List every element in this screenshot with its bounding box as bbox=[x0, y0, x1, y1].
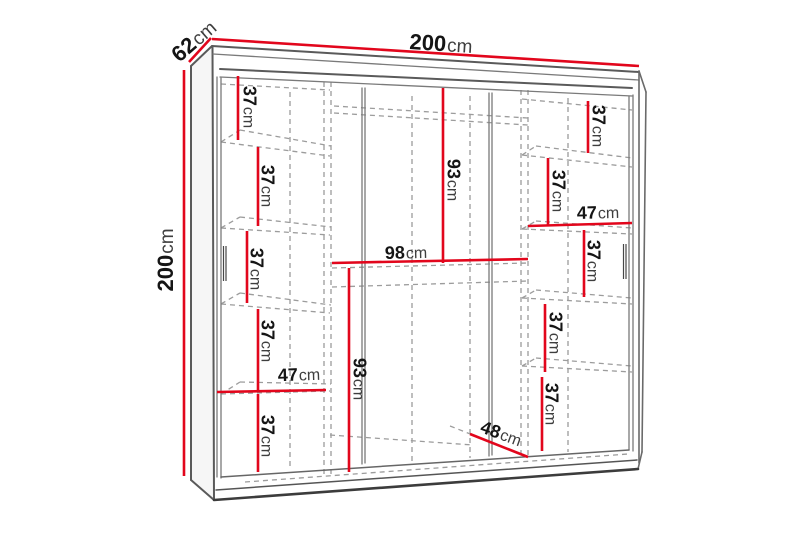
dim-line-left-width bbox=[217, 390, 326, 392]
side-panel-face bbox=[191, 46, 214, 500]
wardrobe-drawing bbox=[0, 0, 800, 533]
dim-line-width-top bbox=[212, 39, 639, 66]
cabinet-right-edge-lines bbox=[638, 71, 646, 469]
dim-line-right-width bbox=[528, 223, 632, 226]
wardrobe-dimension-diagram: 200cm 62cm 200cm 37cm 37cm 37cm 37cm 47c… bbox=[0, 0, 800, 533]
door-handle-lines bbox=[224, 244, 627, 281]
dim-line-middle-bottom bbox=[470, 434, 528, 457]
hidden-interior-lines bbox=[221, 82, 632, 482]
cabinet-base-lines bbox=[214, 450, 638, 500]
